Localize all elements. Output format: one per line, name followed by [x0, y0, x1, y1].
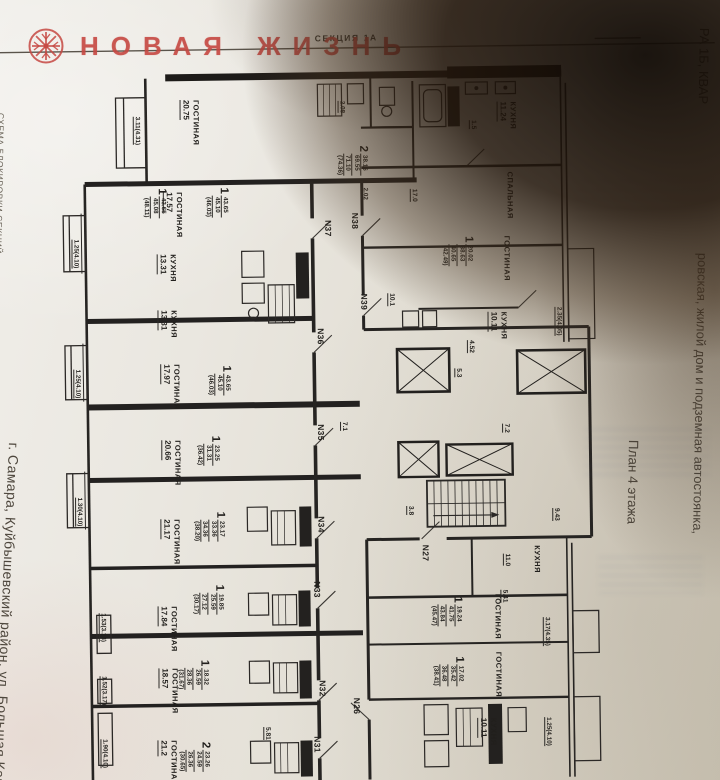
apartment-number: N39	[359, 294, 369, 311]
dimension-label: 1.25(4.10)	[73, 370, 81, 399]
logo-ornament-icon	[26, 26, 66, 66]
area-number: 17.0	[410, 189, 418, 202]
room-label: КУХНЯ13.31	[158, 310, 179, 338]
area-number: 3.8	[406, 506, 414, 515]
apartment-number: N32	[318, 680, 328, 697]
margin-note-right-top: РА 1Б, КВАР	[696, 28, 712, 104]
apartment-number: N31	[312, 736, 322, 753]
dimension-label: 2.02	[361, 188, 369, 200]
bath-fixtures	[239, 81, 527, 777]
dimension-label: 1.30(4.10)	[75, 498, 83, 527]
dimension-label: 1.52(3.17)	[100, 676, 108, 705]
apartment-number: N35	[316, 424, 326, 441]
room-label: ГОСТИНАЯ20.66	[162, 440, 183, 485]
dimension-label: 1.53(3.13)	[99, 613, 107, 642]
unit-info: 143.6545.10(46.03)	[204, 188, 228, 218]
room-label: КУХНЯ10.11	[477, 718, 498, 746]
dimension-label: 3.17(4.35)	[543, 617, 551, 646]
unit-info: 143.6545.10(46.03)	[207, 366, 231, 396]
dimension-label: 1.90(4.10)	[100, 739, 108, 768]
dimension-label: 1.25(4.10)	[71, 240, 79, 269]
staircase	[427, 480, 506, 527]
unit-info: 119.8525.5927.12(30.17)	[192, 585, 225, 615]
room-label: ГОСТИНАЯ17.97	[160, 364, 181, 409]
area-number: 9.43	[552, 508, 560, 521]
brand-name: НОВАЯ ЖИЗНЬ	[80, 31, 413, 62]
room-label: ГОСТИНАЯ	[502, 236, 512, 281]
area-number: 1.5	[469, 120, 477, 129]
unit-info: 118.3226.5928.36(31.67)	[177, 660, 210, 690]
area-number: 5.81	[263, 727, 271, 740]
dimension-label: 1.25(4.10)	[544, 717, 552, 746]
area-number: 5.41	[500, 590, 508, 603]
brand-logo: НОВАЯ ЖИЗНЬ	[26, 26, 413, 66]
area-number: 5.3	[454, 368, 462, 377]
elevator-shafts	[397, 347, 587, 478]
room-label: КУХНЯ13.31	[157, 254, 178, 282]
margin-note-plan-title: План 4 этажа	[625, 440, 641, 524]
dimension-label: 3.11(4.31)	[133, 117, 141, 145]
room-label: КУХНЯ	[532, 545, 542, 573]
unit-info: 123.2531.31(36.42)	[196, 436, 220, 466]
area-number: 7.1	[340, 422, 348, 431]
apartment-number: N27	[421, 545, 431, 562]
room-label: СПАЛЬНАЯ	[505, 172, 515, 219]
room-label: КУХНЯ11.24	[497, 101, 518, 129]
unit-info: 238.1669.5571.10(74.36)	[335, 146, 368, 176]
unit-info: 120.0238.6340.65(42.49)	[441, 236, 474, 266]
dimension-label: 2.35(4.05)	[554, 307, 562, 336]
apartment-number: N33	[312, 581, 322, 598]
floor-plan-layer: СЕКЦИЯ 1А ГОСТИНАЯ20.75 ГОСТИНАЯ17.57 КУ…	[0, 0, 720, 780]
unit-info: 223.2624.5926.36(30.65)	[178, 742, 211, 772]
unit-info: 119.2441.7543.84(45.47)	[430, 596, 463, 626]
room-label: ГОСТИНАЯ17.84	[158, 606, 179, 651]
unit-info: 117.0235.4236.48(38.41)	[432, 656, 465, 686]
photographed-floor-plan: СЕКЦИЯ 1А ГОСТИНАЯ20.75 ГОСТИНАЯ17.57 КУ…	[0, 0, 720, 780]
floor-plan-drawing	[0, 0, 720, 780]
apartment-number: N26	[352, 698, 362, 715]
unit-info: 123.1733.3634.36(38.20)	[193, 512, 226, 542]
apartment-number: N34	[316, 516, 326, 533]
room-label: КУХНЯ10.11	[488, 312, 509, 340]
unit-info: 143.6545.08(48.11)	[142, 188, 166, 218]
party-walls	[85, 180, 424, 707]
apartment-number: N37	[323, 220, 333, 237]
room-label: ГОСТИНАЯ20.75	[180, 100, 201, 145]
room-label: ГОСТИНАЯ	[494, 652, 504, 697]
dimension-label: 2.08	[338, 101, 346, 113]
area-number: 7.2	[502, 424, 510, 433]
top-outer-wall	[165, 65, 561, 83]
area-number: 11.0	[503, 554, 511, 567]
apartment-number: N36	[316, 328, 326, 345]
apartment-number: N38	[350, 213, 360, 230]
area-number: 10.1	[387, 293, 395, 306]
area-number: 4.52	[467, 340, 475, 353]
room-label: ГОСТИНАЯ21.17	[161, 519, 182, 564]
room-label: ГОСТИНАЯ21.2	[158, 740, 179, 780]
